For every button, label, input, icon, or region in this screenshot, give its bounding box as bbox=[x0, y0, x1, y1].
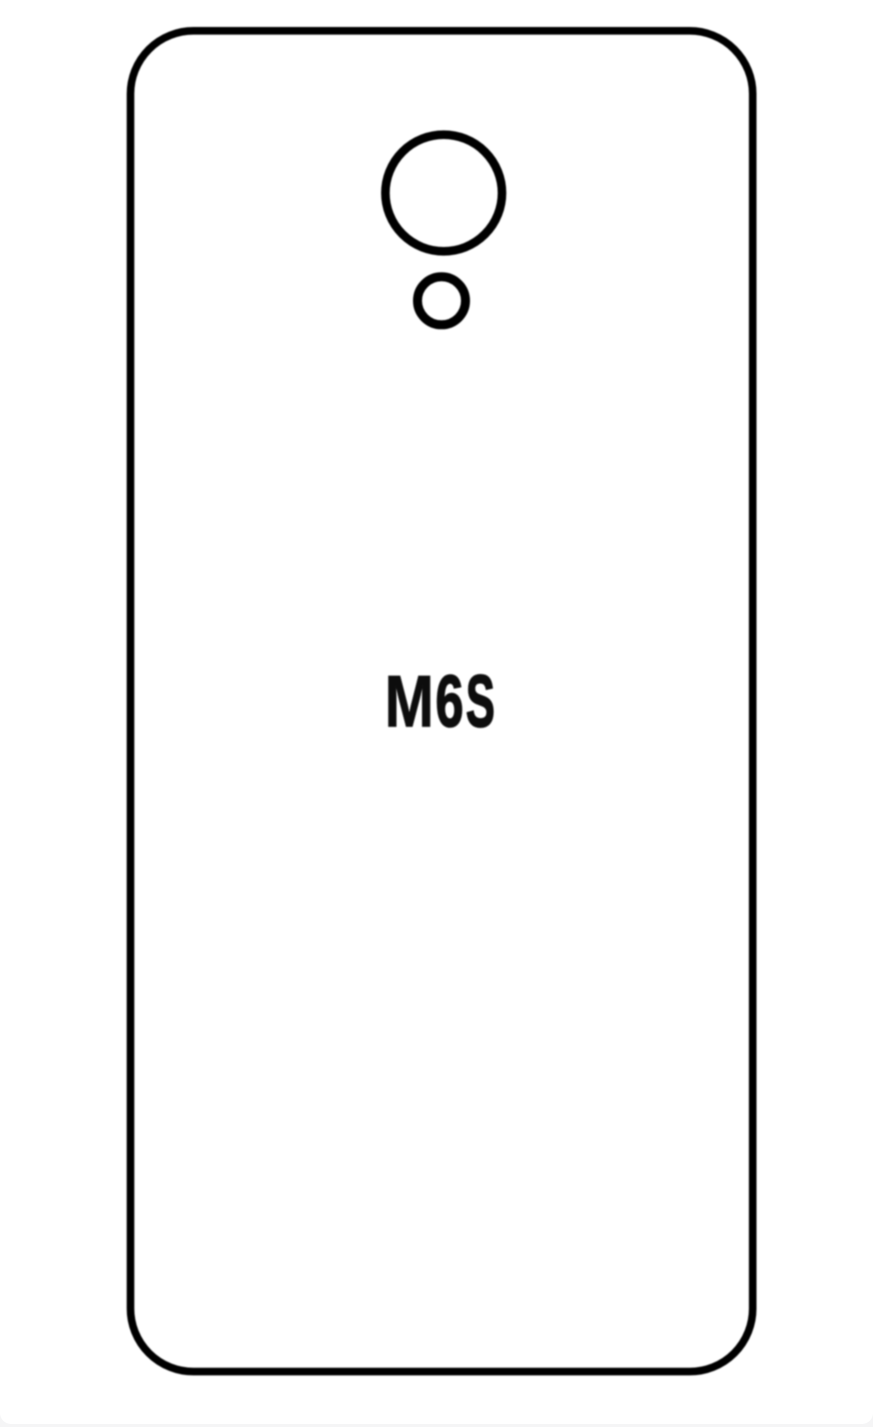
svg-text:M: M bbox=[385, 662, 434, 743]
svg-text:S: S bbox=[466, 661, 495, 743]
svg-text:6: 6 bbox=[435, 661, 463, 742]
